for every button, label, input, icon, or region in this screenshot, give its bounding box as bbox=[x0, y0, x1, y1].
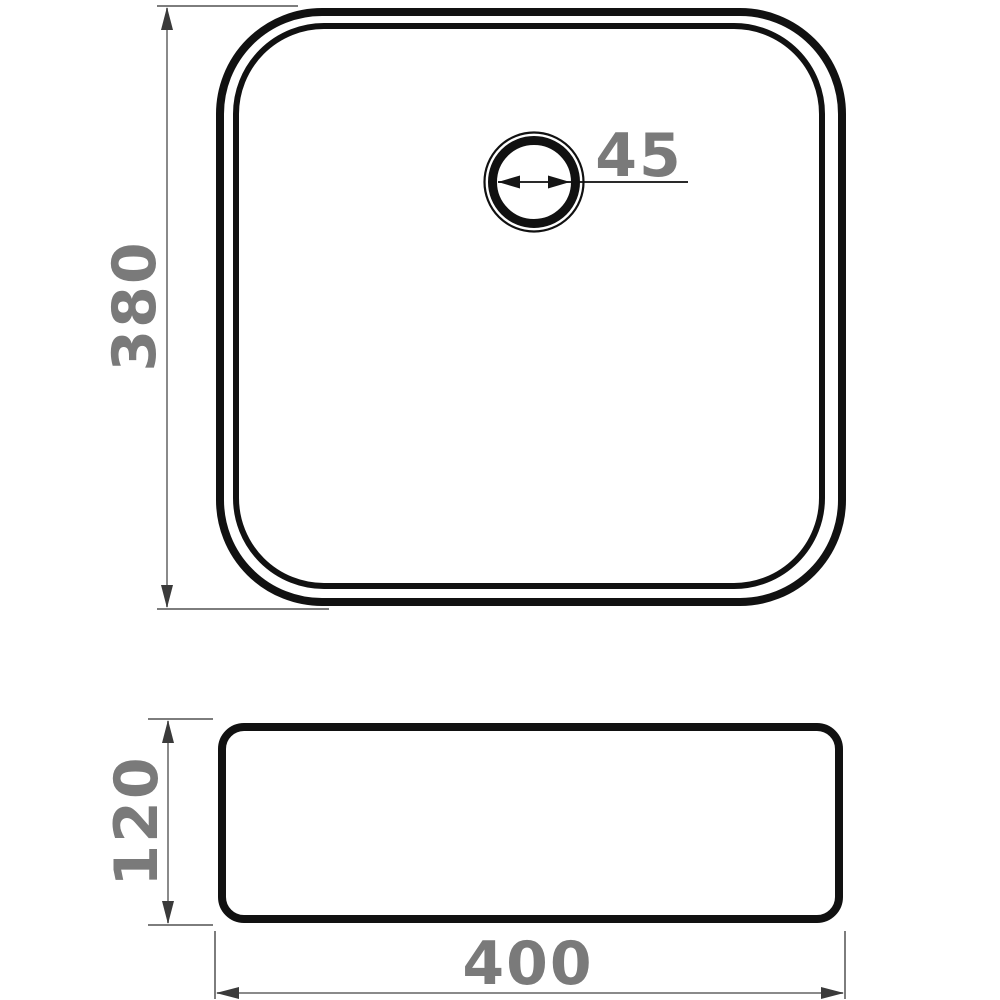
dimension-120-arrow-up bbox=[162, 720, 174, 743]
dimension-400-label: 400 bbox=[462, 929, 593, 999]
dimension-120-label: 120 bbox=[102, 755, 172, 886]
dimension-400-arrow-right bbox=[821, 987, 844, 999]
basin-outer-outline bbox=[220, 12, 842, 602]
drain-arrow-right bbox=[548, 176, 570, 189]
dimension-400-arrow-left bbox=[216, 987, 239, 999]
dimension-380-arrow-down bbox=[161, 585, 173, 608]
drain-arrow-left bbox=[498, 176, 520, 189]
dimension-120-arrow-down bbox=[162, 901, 174, 924]
drawing-canvas: 45 380 120 400 bbox=[0, 0, 1000, 1000]
dimension-380-label: 380 bbox=[100, 240, 170, 371]
dimension-380-arrow-up bbox=[161, 7, 173, 30]
side-view: 120 400 bbox=[102, 719, 845, 999]
drain-diameter-label: 45 bbox=[595, 121, 683, 191]
basin-inner-outline bbox=[236, 26, 822, 586]
top-view: 45 380 bbox=[100, 6, 842, 609]
basin-side-outline bbox=[222, 727, 839, 919]
sink-technical-drawing: 45 380 120 400 bbox=[0, 0, 1000, 1000]
